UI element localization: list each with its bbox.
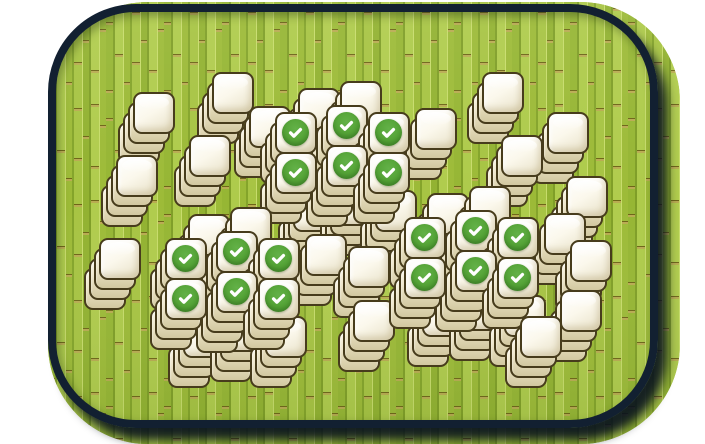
tile-face (133, 92, 175, 134)
tile-gloss-highlight (475, 190, 505, 203)
tile-stack-matched[interactable] (368, 112, 410, 154)
tile-gloss-highlight (433, 197, 463, 210)
tile-stack[interactable] (482, 72, 524, 114)
tile-face (99, 238, 141, 280)
matched-check-icon (375, 119, 402, 146)
matched-check-icon (172, 285, 199, 312)
matched-check-icon (462, 217, 489, 244)
tile-face (189, 135, 231, 177)
tile-gloss-highlight (421, 112, 451, 125)
tile-gloss-highlight (488, 76, 518, 89)
tile-stack[interactable] (520, 316, 562, 358)
tile-gloss-highlight (139, 96, 169, 109)
matched-check-icon (172, 245, 199, 272)
tile-face (501, 135, 543, 177)
tile-gloss-highlight (526, 320, 556, 333)
tile-stack[interactable] (560, 290, 602, 332)
tile-stack[interactable] (566, 176, 608, 218)
tile-face (116, 155, 158, 197)
tile-gloss-highlight (566, 294, 596, 307)
matched-check-icon (333, 112, 360, 139)
tile-face (560, 290, 602, 332)
tile-stack[interactable] (212, 72, 254, 114)
tile-face (348, 246, 390, 288)
tile-stack-matched[interactable] (258, 238, 300, 280)
tile-stack-matched[interactable] (275, 152, 317, 194)
tile-gloss-highlight (572, 180, 602, 193)
tile-gloss-highlight (194, 218, 224, 231)
tile-stacks-container (48, 4, 658, 428)
matched-check-icon (282, 119, 309, 146)
tile-face (520, 316, 562, 358)
tile-gloss-highlight (218, 76, 248, 89)
tile-stack[interactable] (570, 240, 612, 282)
tile-stack-matched[interactable] (404, 217, 446, 259)
tile-gloss-highlight (354, 250, 384, 263)
tile-gloss-highlight (576, 244, 606, 257)
tile-face (415, 108, 457, 150)
tile-stack[interactable] (99, 238, 141, 280)
tile-stack-matched[interactable] (497, 217, 539, 259)
page-background (0, 0, 705, 444)
tile-gloss-highlight (122, 159, 152, 172)
matched-check-icon (282, 159, 309, 186)
tile-stack[interactable] (348, 246, 390, 288)
matched-check-icon (504, 264, 531, 291)
tile-stack[interactable] (547, 112, 589, 154)
tile-stack-matched[interactable] (258, 278, 300, 320)
tile-gloss-highlight (359, 304, 389, 317)
tile-gloss-highlight (311, 238, 341, 251)
tile-face (547, 112, 589, 154)
tile-stack[interactable] (189, 135, 231, 177)
tile-stack-matched[interactable] (165, 238, 207, 280)
matched-check-icon (411, 224, 438, 251)
tile-face (212, 72, 254, 114)
tile-stack-matched[interactable] (404, 257, 446, 299)
tile-stack[interactable] (133, 92, 175, 134)
tile-stack-matched[interactable] (368, 152, 410, 194)
tile-gloss-highlight (553, 116, 583, 129)
tile-stack[interactable] (116, 155, 158, 197)
matched-check-icon (265, 245, 292, 272)
tile-stack-matched[interactable] (275, 112, 317, 154)
matched-check-icon (333, 152, 360, 179)
tile-face (482, 72, 524, 114)
tile-face (570, 240, 612, 282)
tile-face (566, 176, 608, 218)
matched-check-icon (504, 224, 531, 251)
tile-stack-matched[interactable] (497, 257, 539, 299)
tile-stack-matched[interactable] (165, 278, 207, 320)
matched-check-icon (411, 264, 438, 291)
matched-check-icon (223, 238, 250, 265)
tile-gloss-highlight (236, 211, 266, 224)
matched-check-icon (223, 278, 250, 305)
tile-gloss-highlight (304, 92, 334, 105)
tile-gloss-highlight (550, 217, 580, 230)
tile-gloss-highlight (105, 242, 135, 255)
tile-gloss-highlight (507, 139, 537, 152)
tile-stack[interactable] (415, 108, 457, 150)
matched-check-icon (462, 257, 489, 284)
tile-gloss-highlight (195, 139, 225, 152)
tile-stack[interactable] (501, 135, 543, 177)
matched-check-icon (265, 285, 292, 312)
tile-gloss-highlight (346, 85, 376, 98)
matched-check-icon (375, 159, 402, 186)
